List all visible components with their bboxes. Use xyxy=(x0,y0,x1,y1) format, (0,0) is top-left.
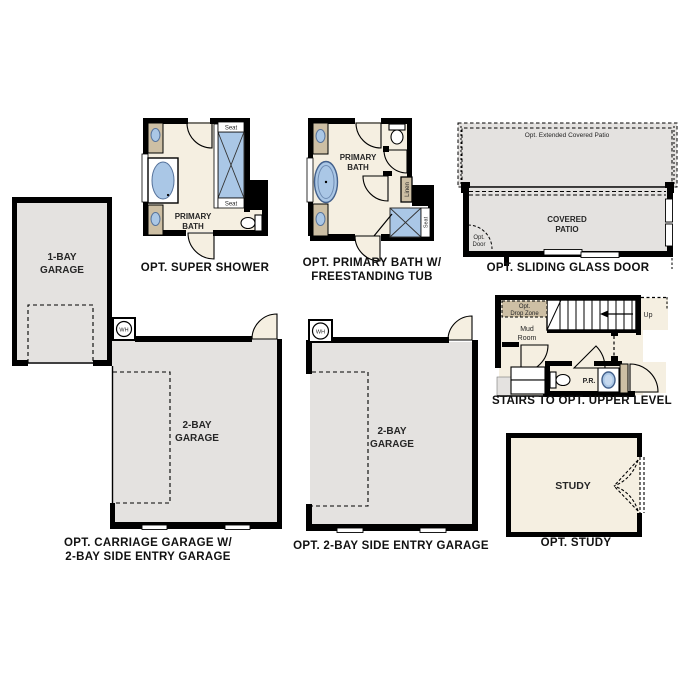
water-heater-label: WH xyxy=(119,328,128,334)
sink-icon xyxy=(598,368,619,392)
linen-label: Linen xyxy=(405,182,411,197)
garage-label-1: 2-BAY xyxy=(377,426,406,437)
plan-carriage-garage: WH 1-BAY GARAGE 2-BAY GARAGE xyxy=(8,192,286,536)
caption-study: OPT. STUDY xyxy=(541,537,612,549)
water-heater-icon: WH xyxy=(309,320,332,342)
caption-primary-bath-line2: FREESTANDING TUB xyxy=(311,271,433,283)
bench-icon xyxy=(511,367,545,394)
caption-carriage-garage-line1: OPT. CARRIAGE GARAGE W/ xyxy=(64,537,232,549)
drop-zone-label-2: Drop Zone xyxy=(510,311,539,317)
water-heater-icon: WH xyxy=(113,318,135,340)
caption-side-entry-garage: OPT. 2-BAY SIDE ENTRY GARAGE xyxy=(293,540,489,552)
plan-side-entry-garage: WH 2-BAY GARAGE xyxy=(302,310,482,536)
seat-top-label: Seat xyxy=(225,126,238,132)
drop-zone: Opt. Drop Zone xyxy=(502,301,547,317)
extended-patio-label: Opt. Extended Covered Patio xyxy=(525,132,610,139)
door-jamb xyxy=(620,364,628,393)
room-label-primary-bath: PRIMARY xyxy=(340,153,377,162)
room-label-primary-bath-2: BATH xyxy=(347,163,369,172)
door-swing-icon xyxy=(252,314,277,339)
extended-patio-area: Opt. Extended Covered Patio xyxy=(458,123,677,193)
floorplan-options-sheet: Seat Seat PRIMARY BATH OPT. SUPER SHOWER xyxy=(0,0,687,687)
opt-door-label-2: Door xyxy=(472,242,485,248)
mud-room-label-2: Room xyxy=(518,335,537,342)
seat-label: Seat xyxy=(424,216,430,228)
covered-patio-label-2: PATIO xyxy=(555,225,578,234)
study-label: STUDY xyxy=(555,480,591,492)
opt-door-label-1: Opt. xyxy=(473,235,485,241)
water-heater-label: WH xyxy=(316,330,325,336)
plan-study: STUDY xyxy=(502,428,664,540)
garage2-label-2: GARAGE xyxy=(175,433,219,444)
covered-patio-label-1: COVERED xyxy=(547,215,587,224)
mud-room-label-1: Mud xyxy=(520,326,534,333)
plan-sliding-glass-door: Opt. Extended Covered Patio xyxy=(452,118,685,270)
freestanding-tub-icon xyxy=(307,158,338,203)
caption-carriage-garage-line2: 2-BAY SIDE ENTRY GARAGE xyxy=(65,551,230,563)
covered-patio-area: Opt. Door COVERED PATIO xyxy=(463,188,673,269)
caption-sliding-glass-door: OPT. SLIDING GLASS DOOR xyxy=(487,262,650,274)
linen-closet: Linen xyxy=(401,177,412,202)
up-label: Up xyxy=(644,312,653,319)
garage1-label-2: GARAGE xyxy=(40,265,84,276)
garage1-label-1: 1-BAY xyxy=(47,252,76,263)
door-swing-icon xyxy=(448,316,472,340)
powder-room-label: P.R. xyxy=(583,378,596,385)
garage-corner xyxy=(497,377,511,396)
plan-primary-bath-tub: Linen Seat PRIMARY BATH xyxy=(303,114,439,266)
garage2-label-1: 2-BAY xyxy=(182,420,211,431)
garage-label-2: GARAGE xyxy=(370,439,414,450)
drop-zone-label-1: Opt. xyxy=(519,304,531,310)
caption-primary-bath-line1: OPT. PRIMARY BATH W/ xyxy=(303,257,442,269)
plan-stairs-upper-level: Up Opt. Drop Zone Mud Room P.R. xyxy=(493,291,671,401)
caption-stairs-upper-level: STAIRS TO OPT. UPPER LEVEL xyxy=(492,395,672,407)
